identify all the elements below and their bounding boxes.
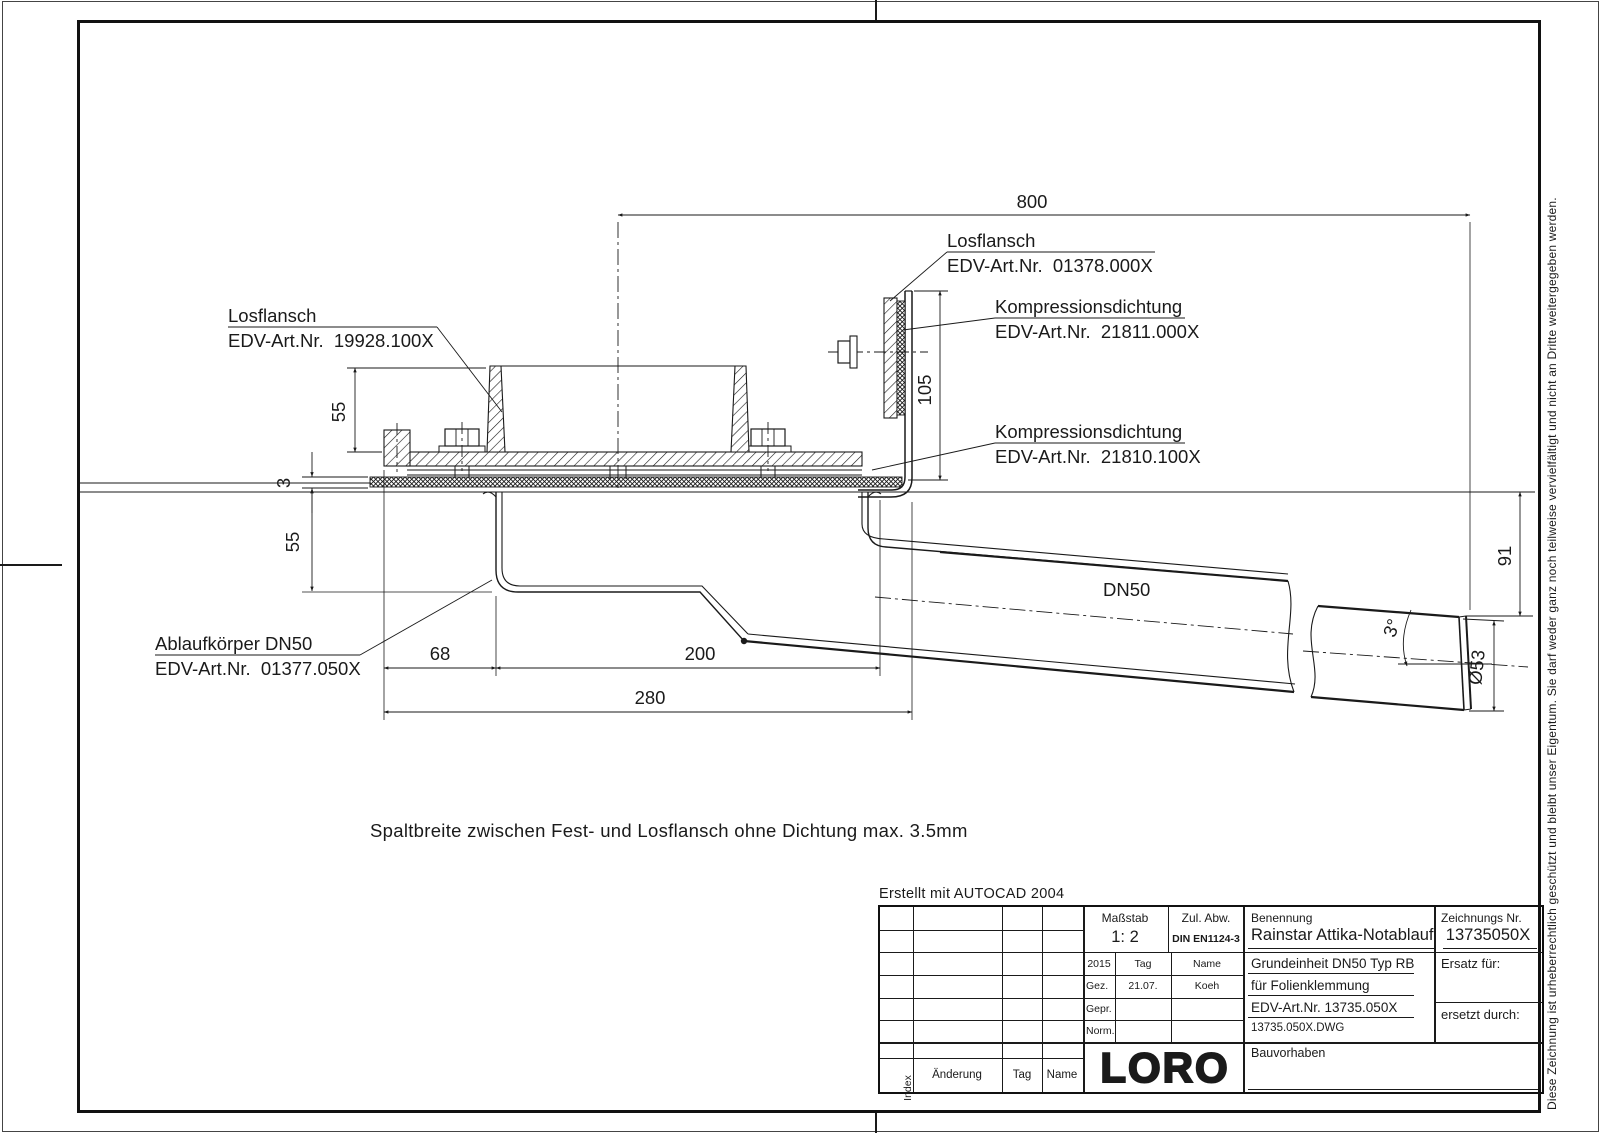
gez-name: Koeh [1195, 980, 1220, 992]
dimension-lines [302, 215, 1533, 720]
desc-line4: 13735.050X.DWG [1251, 1022, 1344, 1034]
name-col-header: Name [1047, 1069, 1078, 1081]
label-losflansch-left-1: Losflansch [228, 305, 316, 326]
title-block: Maßstab 1: 2 Zul. Abw. DIN EN1124-3 Bene… [878, 905, 1544, 1094]
dim-280: 280 [635, 687, 666, 708]
year-cell: 2015 [1087, 958, 1110, 970]
desc-line2: für Folienklemmung [1251, 978, 1370, 993]
drain-body [483, 492, 1295, 692]
massstab-value: 1: 2 [1111, 928, 1139, 947]
norm-label: Norm. [1086, 1025, 1115, 1037]
label-kompression-top-2: EDV-Art.Nr. 21811.000X [995, 321, 1199, 342]
loro-logo: LORO [1090, 1044, 1240, 1091]
slope-angle-arc [1403, 610, 1411, 666]
tag-header: Tag [1135, 958, 1152, 970]
bauvorhaben-label: Bauvorhaben [1251, 1046, 1325, 1060]
aenderung-col-header: Änderung [932, 1069, 982, 1081]
dim-55-top: 55 [328, 402, 349, 423]
label-ablaufkoerper-1: Ablaufkörper DN50 [155, 633, 312, 654]
pipe-break-line-1 [1288, 581, 1294, 692]
dim-53: Ø53 [1464, 649, 1489, 686]
benennung-value: Rainstar Attika-Notablauf [1251, 926, 1434, 945]
label-losflansch-right-2: EDV-Art.Nr. 01378.000X [947, 255, 1153, 276]
funnel-section [487, 222, 749, 491]
pipe-label: DN50 [1103, 579, 1150, 600]
label-ablaufkoerper-2: EDV-Art.Nr. 01377.050X [155, 658, 361, 679]
dim-3: 3 [273, 478, 294, 488]
desc-line1: Grundeinheit DN50 Typ RB [1251, 956, 1414, 971]
dim-68: 68 [430, 643, 451, 664]
loro-logo-text: LORO [1100, 1044, 1229, 1091]
benennung-label: Benennung [1251, 911, 1312, 925]
name-header: Name [1193, 958, 1221, 970]
compression-seal-section [897, 301, 905, 415]
gez-label: Gez. [1086, 980, 1108, 992]
loose-flange-plate-section [884, 298, 897, 418]
label-losflansch-right-1: Losflansch [947, 230, 1035, 251]
outlet-pipe [875, 581, 1528, 710]
ersatz-label: Ersatz für: [1441, 956, 1500, 971]
zul-abw-label: Zul. Abw. [1182, 911, 1231, 925]
label-kompression-top-1: Kompressionsdichtung [995, 296, 1182, 317]
dim-800: 800 [1017, 191, 1048, 212]
wall-bolt-head [838, 341, 850, 363]
gepr-label: Gepr. [1086, 1003, 1112, 1015]
membrane-section [370, 477, 902, 487]
index-col-header: Index [902, 1075, 914, 1101]
label-kompression-bottom-2: EDV-Art.Nr. 21810.100X [995, 446, 1201, 467]
zeichnungs-value: 13735050X [1446, 926, 1530, 945]
pipe-slope-dim: 3° [1379, 616, 1405, 640]
gez-date: 21.07. [1128, 980, 1157, 992]
dim-200: 200 [685, 643, 716, 664]
pipe-centerline-1 [875, 597, 1293, 634]
dim-55-bottom: 55 [282, 532, 303, 553]
label-losflansch-left-2: EDV-Art.Nr. 19928.100X [228, 330, 434, 351]
massstab-label: Maßstab [1102, 911, 1149, 925]
dim-105: 105 [914, 375, 935, 406]
zeichnungs-label: Zeichnungs Nr. [1441, 911, 1522, 925]
zul-abw-value: DIN EN1124-3 [1172, 933, 1240, 945]
tag-col-header: Tag [1013, 1069, 1032, 1081]
ersetzt-label: ersetzt durch: [1441, 1007, 1520, 1022]
label-kompression-bottom-1: Kompressionsdichtung [995, 421, 1182, 442]
wall-bolt-washer [850, 336, 857, 368]
desc-line3: EDV-Art.Nr. 13735.050X [1251, 1000, 1397, 1015]
dim-91: 91 [1494, 546, 1515, 567]
